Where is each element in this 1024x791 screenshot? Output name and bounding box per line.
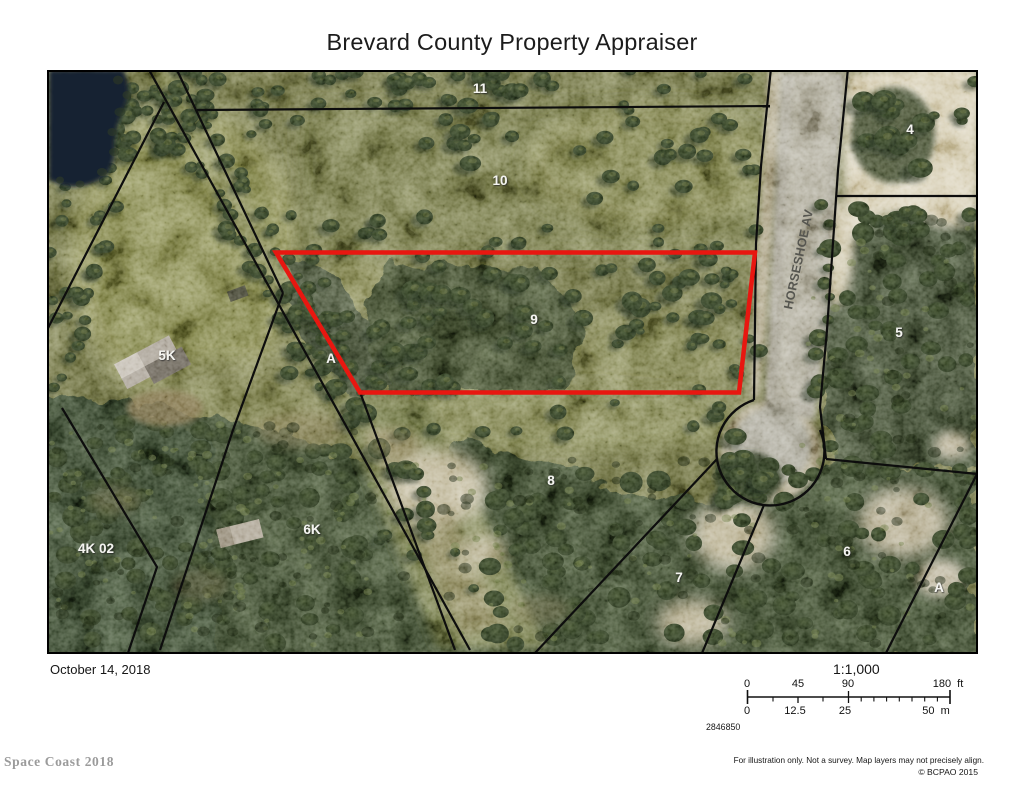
svg-text:7: 7	[675, 570, 683, 585]
svg-text:8: 8	[547, 473, 555, 488]
svg-text:A: A	[934, 580, 944, 595]
svg-text:6K: 6K	[303, 522, 321, 537]
svg-text:5: 5	[895, 325, 903, 340]
svg-text:5K: 5K	[158, 348, 176, 363]
svg-text:A: A	[326, 351, 336, 366]
svg-text:6: 6	[843, 544, 851, 559]
svg-text:10: 10	[492, 173, 507, 188]
svg-text:4: 4	[906, 122, 914, 137]
svg-text:11: 11	[473, 81, 488, 96]
svg-text:9: 9	[530, 312, 538, 327]
svg-text:4K 02: 4K 02	[78, 541, 114, 556]
